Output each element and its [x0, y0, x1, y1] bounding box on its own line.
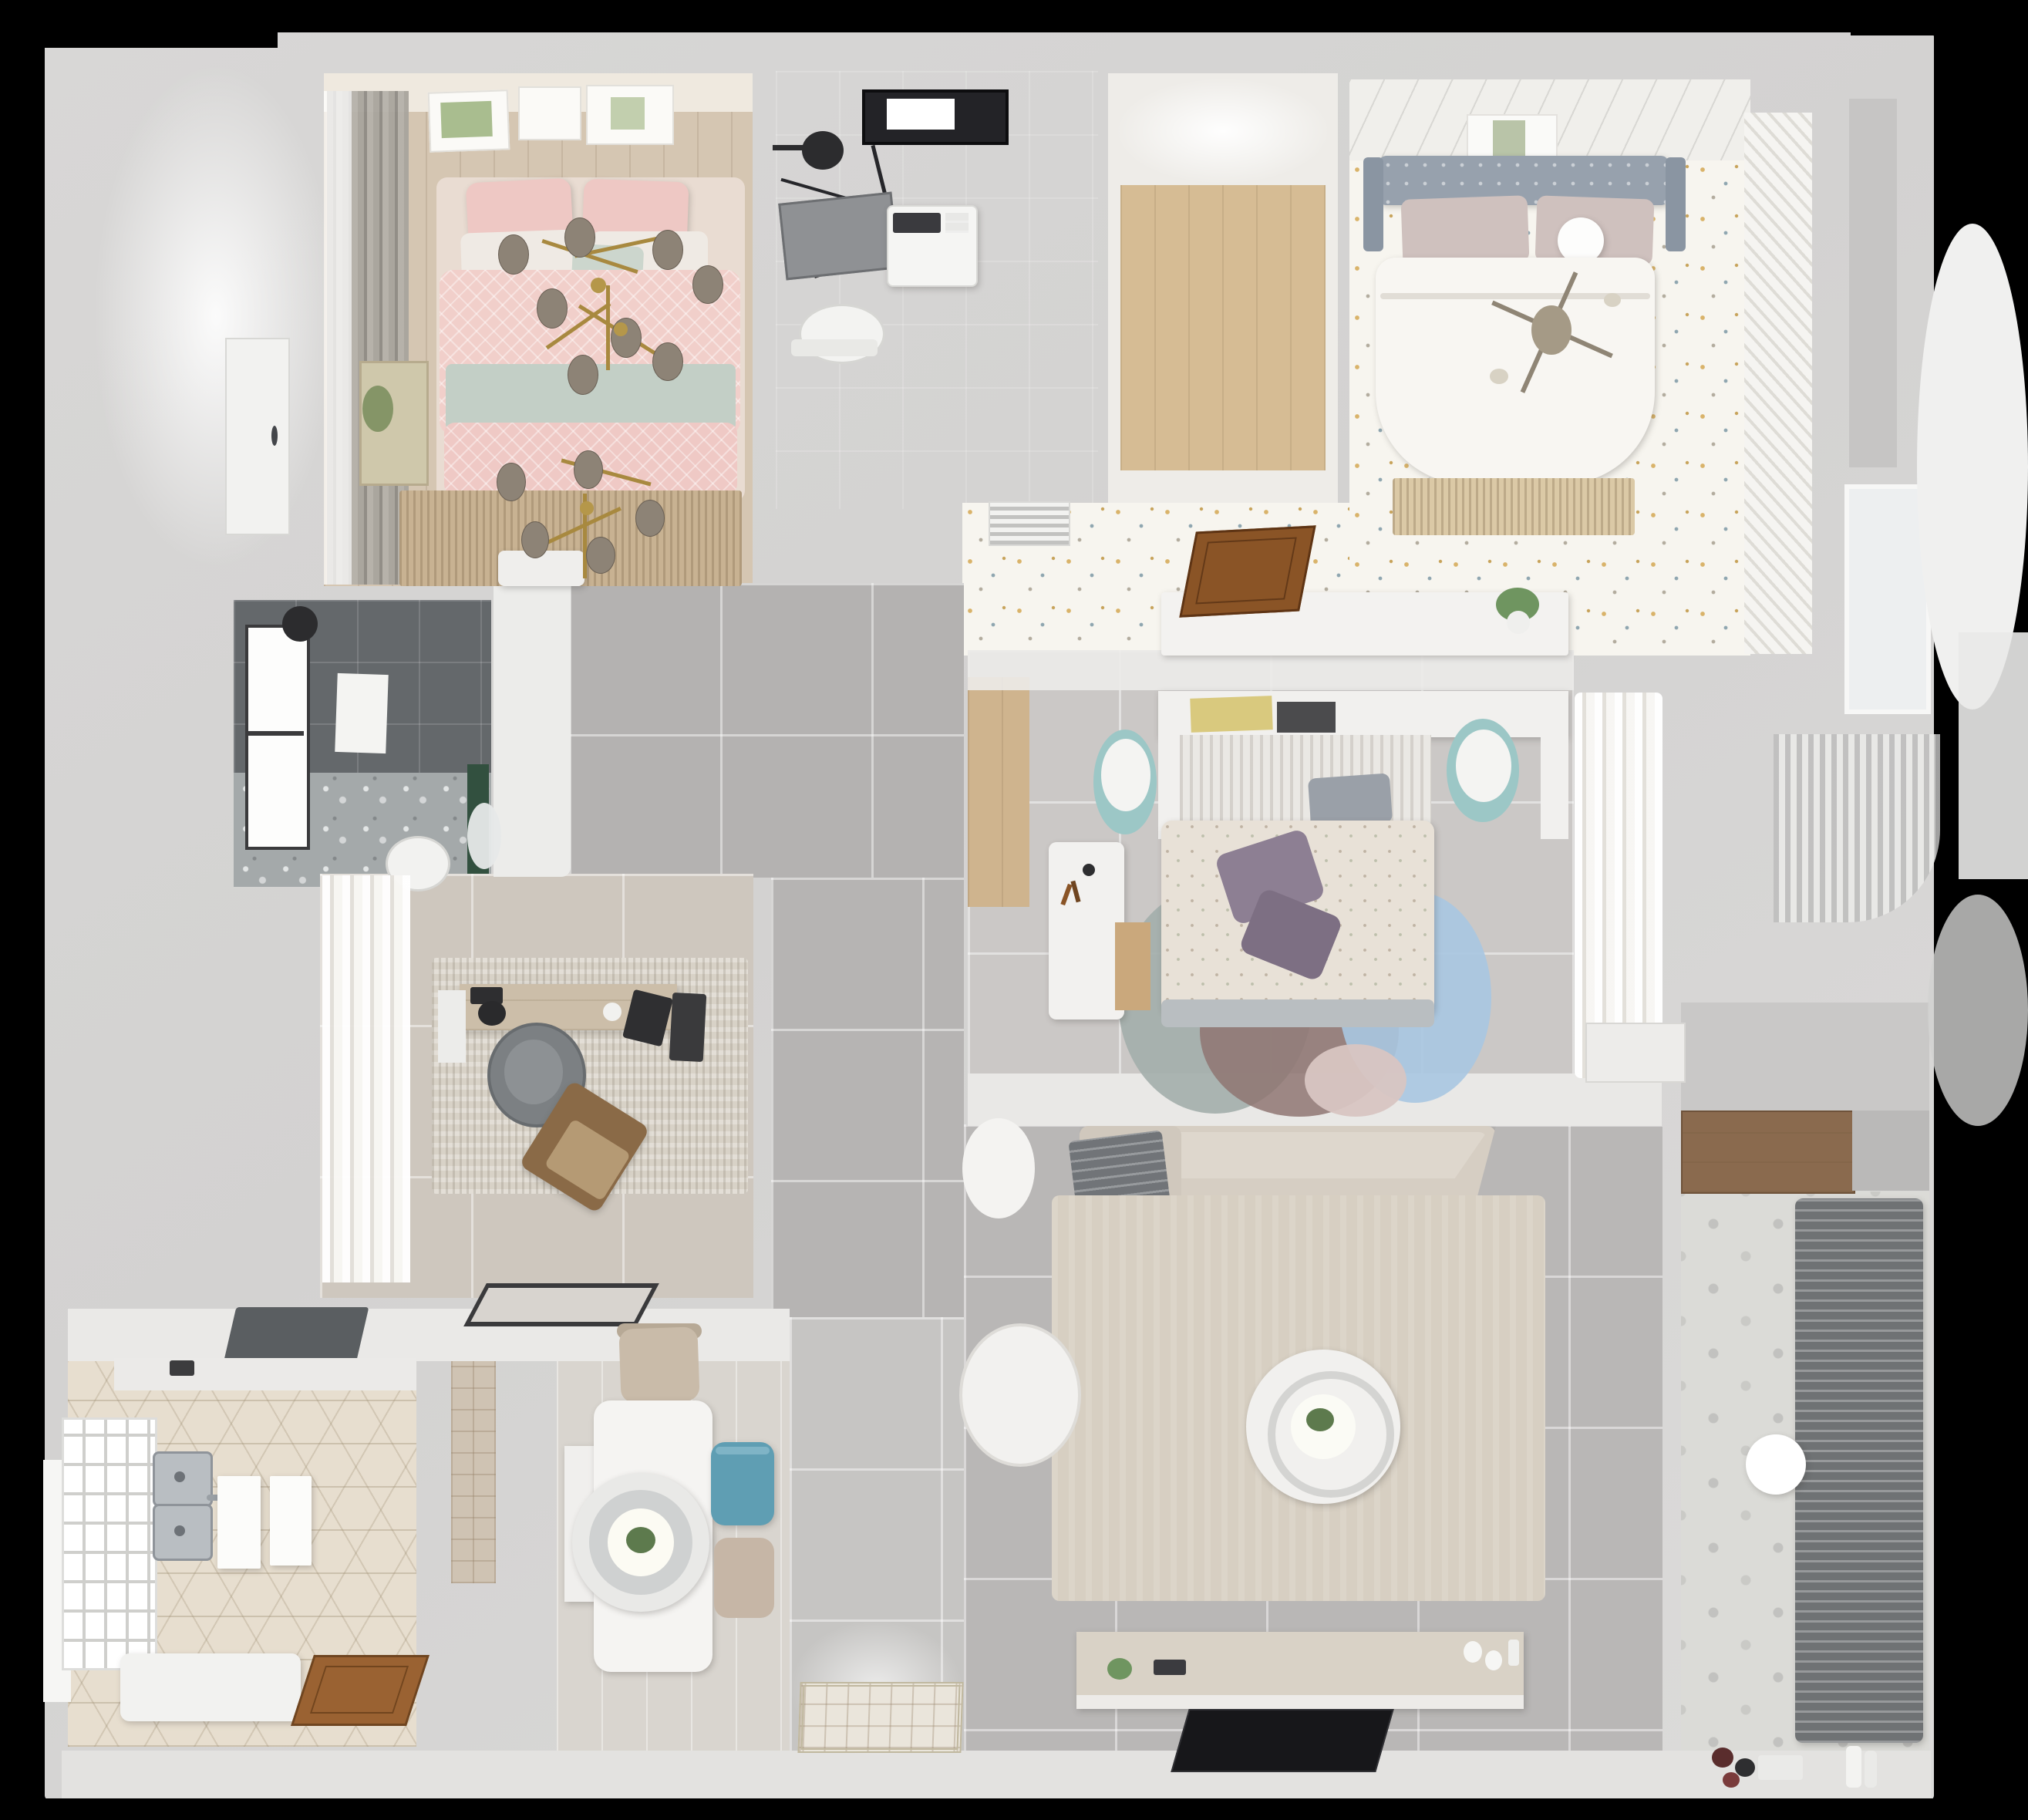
chandelier-globe — [692, 265, 723, 304]
balcony-radiator — [1795, 1198, 1923, 1743]
console-cup — [1485, 1650, 1502, 1670]
bedroom-pink-sheer — [324, 91, 352, 585]
shower-tray — [778, 192, 900, 281]
chandelier-arm — [606, 285, 610, 370]
ceiling-fan-tip — [1604, 293, 1621, 307]
chandelier2-globe — [574, 450, 603, 489]
coffee-table-plant — [1306, 1408, 1334, 1431]
pendant-lamp-plant — [626, 1527, 655, 1553]
left-wall-door-handle — [271, 426, 278, 446]
right-wall-gray-band — [1849, 99, 1897, 467]
bedroom3-shelf-post — [1541, 691, 1568, 839]
master-louver-wardrobe — [1744, 113, 1812, 654]
wardrobe-storage-box — [1585, 1023, 1686, 1083]
hallway-vent-grille — [989, 501, 1070, 546]
balcony-toy — [1712, 1748, 1733, 1768]
balcony-sphere-light — [1746, 1434, 1806, 1495]
entry-ornate-mat — [797, 1682, 963, 1753]
wall-band-bottom — [62, 1751, 1931, 1798]
corridor-mid — [771, 878, 964, 1317]
balcony-bench — [1758, 1755, 1803, 1780]
kitchen-ceiling-light — [217, 1476, 261, 1569]
balcony-wood-shelf — [1681, 1111, 1855, 1194]
living-armchair — [959, 1323, 1081, 1467]
washing-machine-panel — [893, 213, 941, 233]
console-plant-pot — [1507, 611, 1530, 634]
bedroom3-rug-pink — [1305, 1044, 1406, 1117]
bedside-stool-right-top — [1456, 730, 1511, 802]
kitchen-sink-2-drain — [174, 1525, 185, 1536]
washing-machine-vents — [945, 213, 969, 233]
master-headboard-post — [1363, 157, 1383, 251]
glow-top-left — [93, 62, 339, 571]
study-side-table — [438, 990, 466, 1063]
chandelier2-globe — [497, 463, 526, 501]
chandelier-joint — [614, 322, 628, 336]
dining-chair-top — [618, 1326, 699, 1404]
skylight-glass — [887, 99, 955, 130]
master-headboard-post — [1666, 157, 1686, 251]
master-foot-rug — [1393, 478, 1635, 535]
kitchen-island — [120, 1653, 301, 1721]
kitchen-window — [62, 1417, 157, 1670]
shelf-books-dark — [1277, 702, 1336, 733]
master-sphere-lamp — [1558, 217, 1604, 264]
frame-art-1-print — [440, 101, 493, 138]
chandelier2-globe — [635, 500, 665, 537]
shelf-books-yellow — [1190, 696, 1272, 733]
chandelier-globe — [498, 234, 529, 275]
dining-chair-blue-edge — [716, 1447, 770, 1454]
bedroom3-gray-pillow — [1308, 773, 1393, 827]
chandelier-globe — [564, 217, 595, 258]
black-notch-top-left — [0, 0, 278, 48]
ceiling-glow-closet — [1114, 77, 1332, 185]
kitchen-ceiling-light — [270, 1476, 312, 1566]
wardrobe-hanging-clothes — [1575, 693, 1662, 1078]
corridor-upper — [569, 583, 964, 878]
hallway-wood-door-panel — [1195, 537, 1297, 604]
kitchen-cab-sink — [170, 1360, 194, 1376]
frame-art-2 — [518, 86, 581, 140]
bedroom3-headboard — [1180, 735, 1431, 823]
living-side-stool — [962, 1118, 1035, 1218]
kitchen-top-cabinets — [114, 1358, 416, 1390]
ceiling-fan-tip — [1490, 369, 1508, 384]
balcony-vase — [1865, 1751, 1877, 1788]
kitchen-sink-1-drain — [174, 1471, 185, 1482]
bedroom3-drawer — [1115, 922, 1150, 1010]
master-frame-print — [1493, 120, 1525, 157]
chandelier2-globe — [521, 521, 549, 558]
study-chair-cushion — [504, 1040, 563, 1104]
dining-pattern-strip — [451, 1360, 496, 1583]
master-pillow-left — [1401, 195, 1530, 266]
chandelier2-globe — [586, 537, 615, 574]
exterior-blob-lower — [1928, 895, 2028, 1126]
master-duvet — [1376, 258, 1655, 484]
console-cup — [1464, 1641, 1482, 1663]
exterior-white-door-right — [1959, 632, 2028, 879]
chandelier-globe — [568, 355, 598, 395]
walkin-closet-wood-floor — [1120, 185, 1326, 470]
desk-mug — [603, 1003, 622, 1021]
window-seat-plant — [362, 386, 393, 432]
console-bottle — [1508, 1640, 1519, 1666]
bath2-shower-head — [282, 606, 318, 642]
console-plant — [1107, 1658, 1132, 1680]
bedroom-third-wood-strip — [968, 677, 1029, 907]
black-strip-bottom — [0, 1798, 2028, 1820]
wall-tv — [1171, 1709, 1394, 1772]
balcony-shelf-gray — [1852, 1111, 1929, 1191]
frame-art-3-print — [611, 97, 645, 130]
chandelier-globe — [537, 288, 568, 329]
bath2-towel — [335, 673, 389, 753]
kitchen-door-panel — [310, 1666, 409, 1714]
ceiling-fan-center — [1531, 305, 1572, 355]
wall-corridor-left-curved — [494, 536, 571, 877]
bedroom3-mouse — [1083, 864, 1095, 876]
balcony-toy — [1723, 1772, 1740, 1788]
shower-head — [802, 131, 844, 170]
balcony-toy — [1735, 1758, 1755, 1777]
chandelier-globe — [652, 342, 683, 381]
tv-console-front — [1076, 1695, 1524, 1709]
ceiling-band-bedroom3 — [968, 650, 1574, 690]
dining-chair-lower — [714, 1538, 774, 1618]
bedside-stool-left-top — [1101, 739, 1150, 811]
dining-chair-blue — [711, 1442, 774, 1525]
chandelier-globe — [652, 230, 683, 270]
floor-plan-canvas — [0, 0, 2028, 1820]
bedroom3-footboard — [1161, 999, 1434, 1027]
bath2-window — [245, 625, 310, 850]
bath2-mirror — [467, 803, 501, 869]
desk-monitor — [669, 993, 707, 1062]
study-doormat — [463, 1283, 659, 1326]
desk-plate — [478, 1001, 506, 1026]
shower-arm — [773, 145, 807, 150]
storage-nook — [1681, 1003, 1929, 1112]
chandelier2-joint — [580, 501, 594, 515]
balcony-vase — [1846, 1746, 1861, 1788]
black-notch-top-right — [1851, 0, 2028, 35]
study-curtain — [322, 875, 410, 1282]
toilet-tank — [791, 339, 878, 356]
console-remote — [1154, 1660, 1186, 1675]
bath2-window-bar — [245, 731, 304, 736]
chandelier-joint — [591, 278, 606, 293]
left-wall-door — [225, 338, 290, 535]
